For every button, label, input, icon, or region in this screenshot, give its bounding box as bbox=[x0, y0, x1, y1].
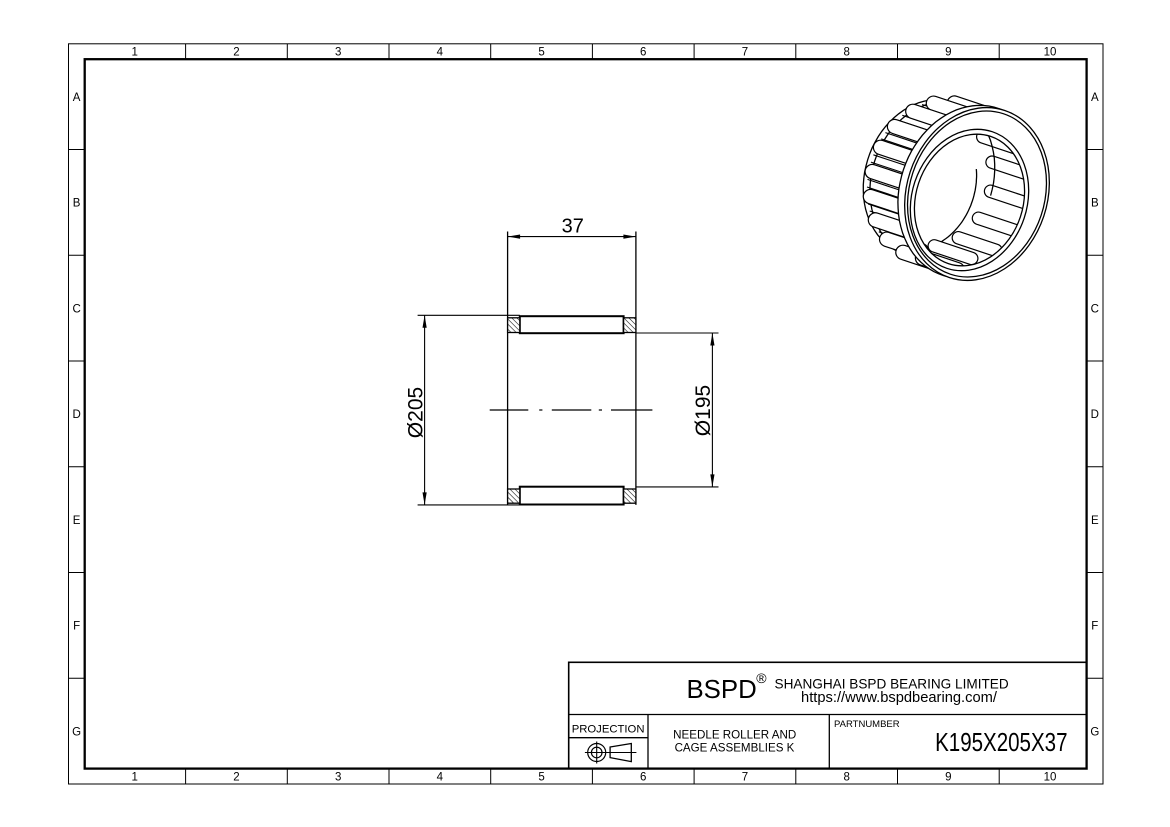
svg-text:1: 1 bbox=[132, 46, 138, 58]
svg-text:2: 2 bbox=[233, 771, 239, 783]
svg-text:Ø195: Ø195 bbox=[692, 385, 715, 436]
svg-text:PARTNUMBER: PARTNUMBER bbox=[834, 719, 900, 730]
svg-text:D: D bbox=[72, 409, 80, 421]
svg-text:1: 1 bbox=[132, 771, 138, 783]
svg-text:D: D bbox=[1091, 409, 1099, 421]
svg-text:K195X205X37: K195X205X37 bbox=[935, 728, 1067, 757]
svg-text:E: E bbox=[1091, 515, 1099, 527]
svg-text:®: ® bbox=[756, 670, 767, 686]
svg-text:G: G bbox=[1090, 726, 1099, 738]
svg-text:5: 5 bbox=[538, 46, 544, 58]
svg-text:E: E bbox=[73, 515, 81, 527]
svg-text:Ø205: Ø205 bbox=[405, 387, 428, 438]
svg-text:F: F bbox=[73, 621, 80, 633]
svg-text:5: 5 bbox=[538, 771, 544, 783]
svg-text:F: F bbox=[1091, 621, 1098, 633]
svg-text:BSPD: BSPD bbox=[686, 676, 756, 704]
svg-text:https://www.bspdbearing.com/: https://www.bspdbearing.com/ bbox=[801, 690, 998, 706]
svg-text:PROJECTION: PROJECTION bbox=[572, 723, 645, 735]
svg-text:B: B bbox=[1091, 198, 1099, 210]
svg-text:4: 4 bbox=[437, 46, 444, 58]
svg-text:CAGE ASSEMBLIES K: CAGE ASSEMBLIES K bbox=[675, 742, 795, 755]
svg-text:37: 37 bbox=[562, 216, 584, 238]
svg-text:3: 3 bbox=[335, 46, 341, 58]
svg-text:A: A bbox=[73, 92, 81, 104]
svg-text:G: G bbox=[72, 726, 81, 738]
svg-text:A: A bbox=[1091, 92, 1099, 104]
svg-text:8: 8 bbox=[843, 46, 849, 58]
svg-text:9: 9 bbox=[945, 771, 951, 783]
svg-text:6: 6 bbox=[640, 46, 646, 58]
svg-text:NEEDLE ROLLER AND: NEEDLE ROLLER AND bbox=[673, 729, 796, 742]
svg-text:10: 10 bbox=[1044, 46, 1057, 58]
svg-text:C: C bbox=[72, 303, 80, 315]
svg-text:7: 7 bbox=[742, 771, 748, 783]
svg-text:2: 2 bbox=[233, 46, 239, 58]
svg-text:10: 10 bbox=[1044, 771, 1057, 783]
svg-text:8: 8 bbox=[843, 771, 849, 783]
svg-text:9: 9 bbox=[945, 46, 951, 58]
svg-text:B: B bbox=[73, 198, 81, 210]
svg-text:7: 7 bbox=[742, 46, 748, 58]
svg-text:4: 4 bbox=[437, 771, 444, 783]
svg-text:6: 6 bbox=[640, 771, 646, 783]
svg-text:C: C bbox=[1091, 303, 1099, 315]
svg-text:3: 3 bbox=[335, 771, 341, 783]
